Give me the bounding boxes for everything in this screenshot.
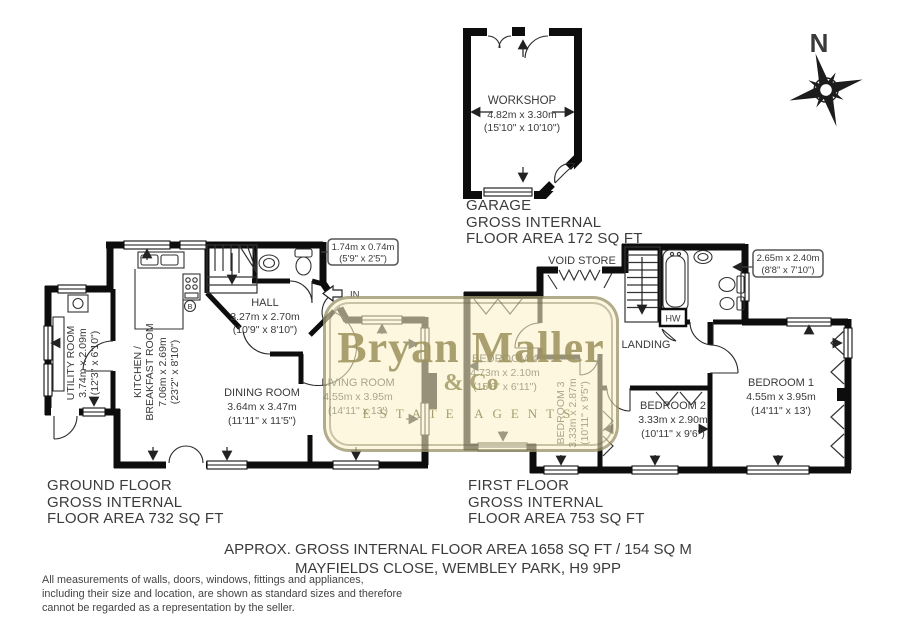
bedroom3-dim-metric: 3.33m x 2.87m — [567, 378, 579, 448]
bath-dim-imperial: (8'8" x 7'10") — [761, 265, 814, 276]
ground-floor-caption-line2: GROSS INTERNAL — [47, 495, 224, 512]
ground-floor-caption: GROUND FLOOR GROSS INTERNAL FLOOR AREA 7… — [47, 478, 224, 528]
bedroom1-label: BEDROOM 1 — [748, 377, 814, 389]
disclaimer-line3: cannot be regarded as a representation b… — [42, 601, 402, 615]
first-floor-caption-line3: FLOOR AREA 753 SQ FT — [468, 511, 645, 528]
hall-label: HALL — [251, 297, 279, 309]
workshop-dim-metric: 4.82m x 3.30m — [487, 109, 557, 121]
dining-dim-metric: 3.64m x 3.47m — [227, 401, 297, 413]
wc-dimension-callout: 1.74m x 0.74m (5'9" x 2'5") — [321, 239, 398, 265]
ground-floor-caption-line1: GROUND FLOOR — [47, 478, 224, 495]
disclaimer-line2: including their size and location, are s… — [42, 587, 402, 601]
entrance-label: IN — [350, 290, 360, 301]
total-area-line: APPROX. GROSS INTERNAL FLOOR AREA 1658 S… — [10, 540, 900, 559]
workshop-dim-imperial: (15'10" x 10'10") — [484, 122, 560, 134]
wc-dim-metric: 1.74m x 0.74m — [332, 242, 395, 253]
garage-caption-line1: GARAGE — [466, 198, 643, 215]
bedroom4-dim-imperial: (15'6" x 6'11") — [473, 381, 537, 393]
boiler-label: B — [187, 302, 192, 311]
utility-label: UTILITY ROOM — [65, 326, 77, 400]
utility-dim-metric: 3.74m x 2.09m — [77, 328, 89, 398]
bedroom4-dim-metric: 4.73m x 2.10m — [470, 367, 540, 379]
dining-label: DINING ROOM — [224, 387, 300, 399]
first-floor-caption: FIRST FLOOR GROSS INTERNAL FLOOR AREA 75… — [468, 478, 645, 528]
bedroom3-dim-imperial: (10'11" x 9'5") — [579, 381, 591, 445]
garage-plan: WORKSHOP 4.82m x 3.30m (15'10" x 10'10") — [455, 25, 590, 200]
wc-dim-imperial: (5'9" x 2'5") — [339, 254, 387, 265]
bedroom3-label: BEDROOM 3 — [555, 381, 567, 444]
hall-dim-imperial: (10'9" x 8'10") — [233, 324, 298, 336]
kitchen-dim-metric: 7.06m x 2.69m — [157, 337, 169, 407]
living-dim-imperial: (14'11" x 13') — [328, 405, 388, 417]
living-dim-metric: 4.55m x 3.95m — [323, 391, 393, 403]
hw-cupboard: HW — [660, 309, 686, 326]
bath-dim-metric: 2.65m x 2.40m — [757, 253, 820, 264]
compass-north-label: N — [810, 28, 829, 58]
ground-floor-plan: B IN 1.74m — [40, 233, 460, 483]
landing-label: LANDING — [622, 339, 671, 351]
bedroom1-dim-metric: 4.55m x 3.95m — [746, 391, 816, 403]
bedroom2-dim-imperial: (10'11" x 9'6") — [641, 428, 705, 440]
kitchen-label-2: BREAKFAST ROOM — [144, 323, 156, 420]
ground-floor-room-fill — [48, 245, 425, 465]
bedroom2-dim-metric: 3.33m x 2.90m — [638, 414, 708, 426]
first-floor-caption-line2: GROSS INTERNAL — [468, 495, 645, 512]
ground-floor-caption-line3: FLOOR AREA 732 SQ FT — [47, 511, 224, 528]
first-floor-caption-line1: FIRST FLOOR — [468, 478, 645, 495]
hall-dim-metric: 3.27m x 2.70m — [230, 311, 300, 323]
living-label: LIVING ROOM — [321, 377, 394, 389]
workshop-label: WORKSHOP — [488, 95, 557, 107]
void-store-label: VOID STORE — [548, 255, 616, 267]
garage-caption-line2: GROSS INTERNAL — [466, 215, 643, 232]
hw-label: HW — [666, 314, 681, 324]
utility-dim-imperial: (12'3" x 6'10") — [89, 331, 101, 396]
floorplan-page: WORKSHOP 4.82m x 3.30m (15'10" x 10'10")… — [0, 0, 900, 635]
disclaimer-line1: All measurements of walls, doors, window… — [42, 573, 402, 587]
bedroom2-label: BEDROOM 2 — [640, 400, 706, 412]
dining-dim-imperial: (11'11" x 11'5") — [228, 415, 296, 427]
compass-rose: N — [783, 18, 873, 130]
bedroom1-dim-imperial: (14'11" x 13') — [751, 405, 811, 417]
kitchen-label-1: KITCHEN / — [132, 346, 144, 398]
first-floor-plan: HW 2.65m x 2.40m (8'8" x 7'10") — [460, 233, 860, 483]
disclaimer-text: All measurements of walls, doors, window… — [42, 573, 402, 616]
bedroom4-label: BEDROOM 4 — [472, 353, 538, 365]
kitchen-dim-imperial: (23'2" x 8'10") — [169, 340, 181, 405]
